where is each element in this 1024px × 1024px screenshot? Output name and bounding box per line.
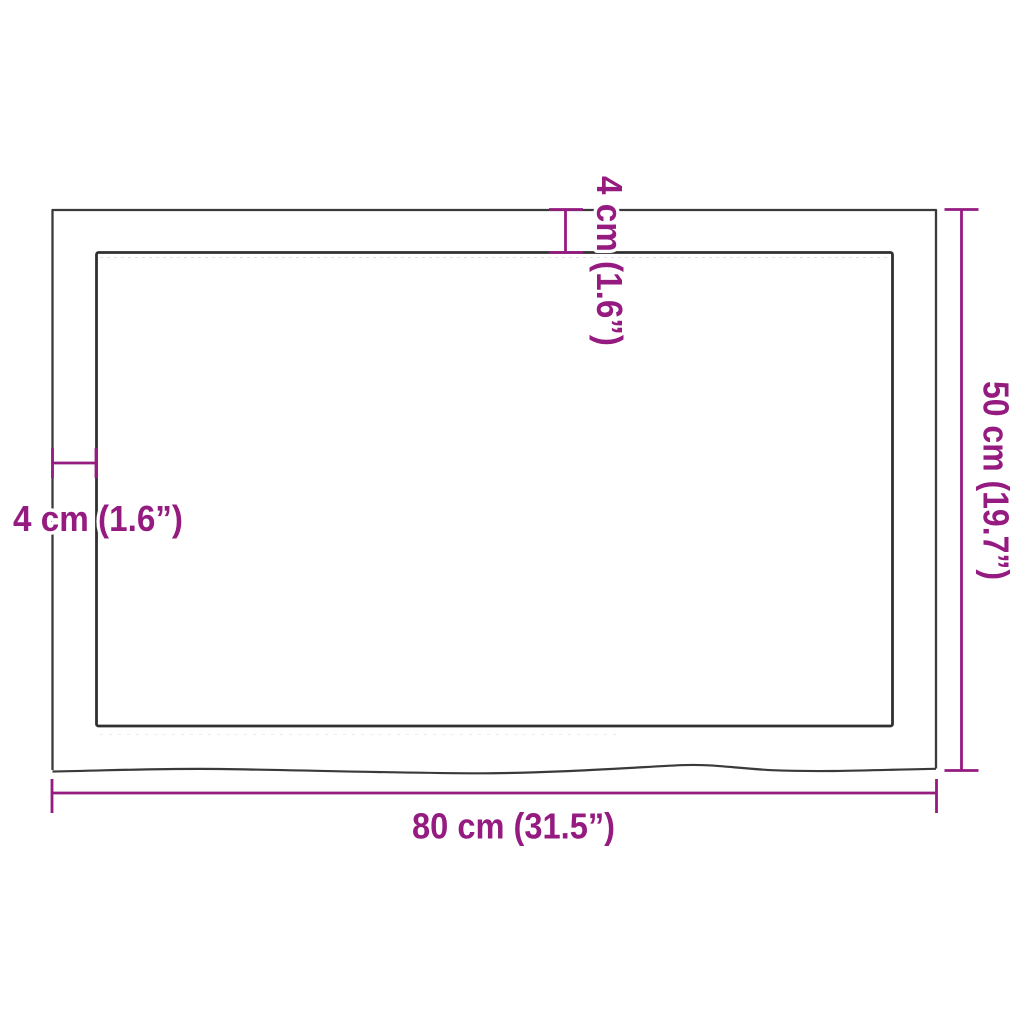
- svg-text:4 cm (1.6”): 4 cm (1.6”): [13, 498, 183, 539]
- svg-text:4 cm (1.6”): 4 cm (1.6”): [589, 176, 630, 346]
- svg-text:50 cm (19.7”): 50 cm (19.7”): [976, 381, 1017, 580]
- svg-text:80 cm (31.5”): 80 cm (31.5”): [412, 806, 615, 847]
